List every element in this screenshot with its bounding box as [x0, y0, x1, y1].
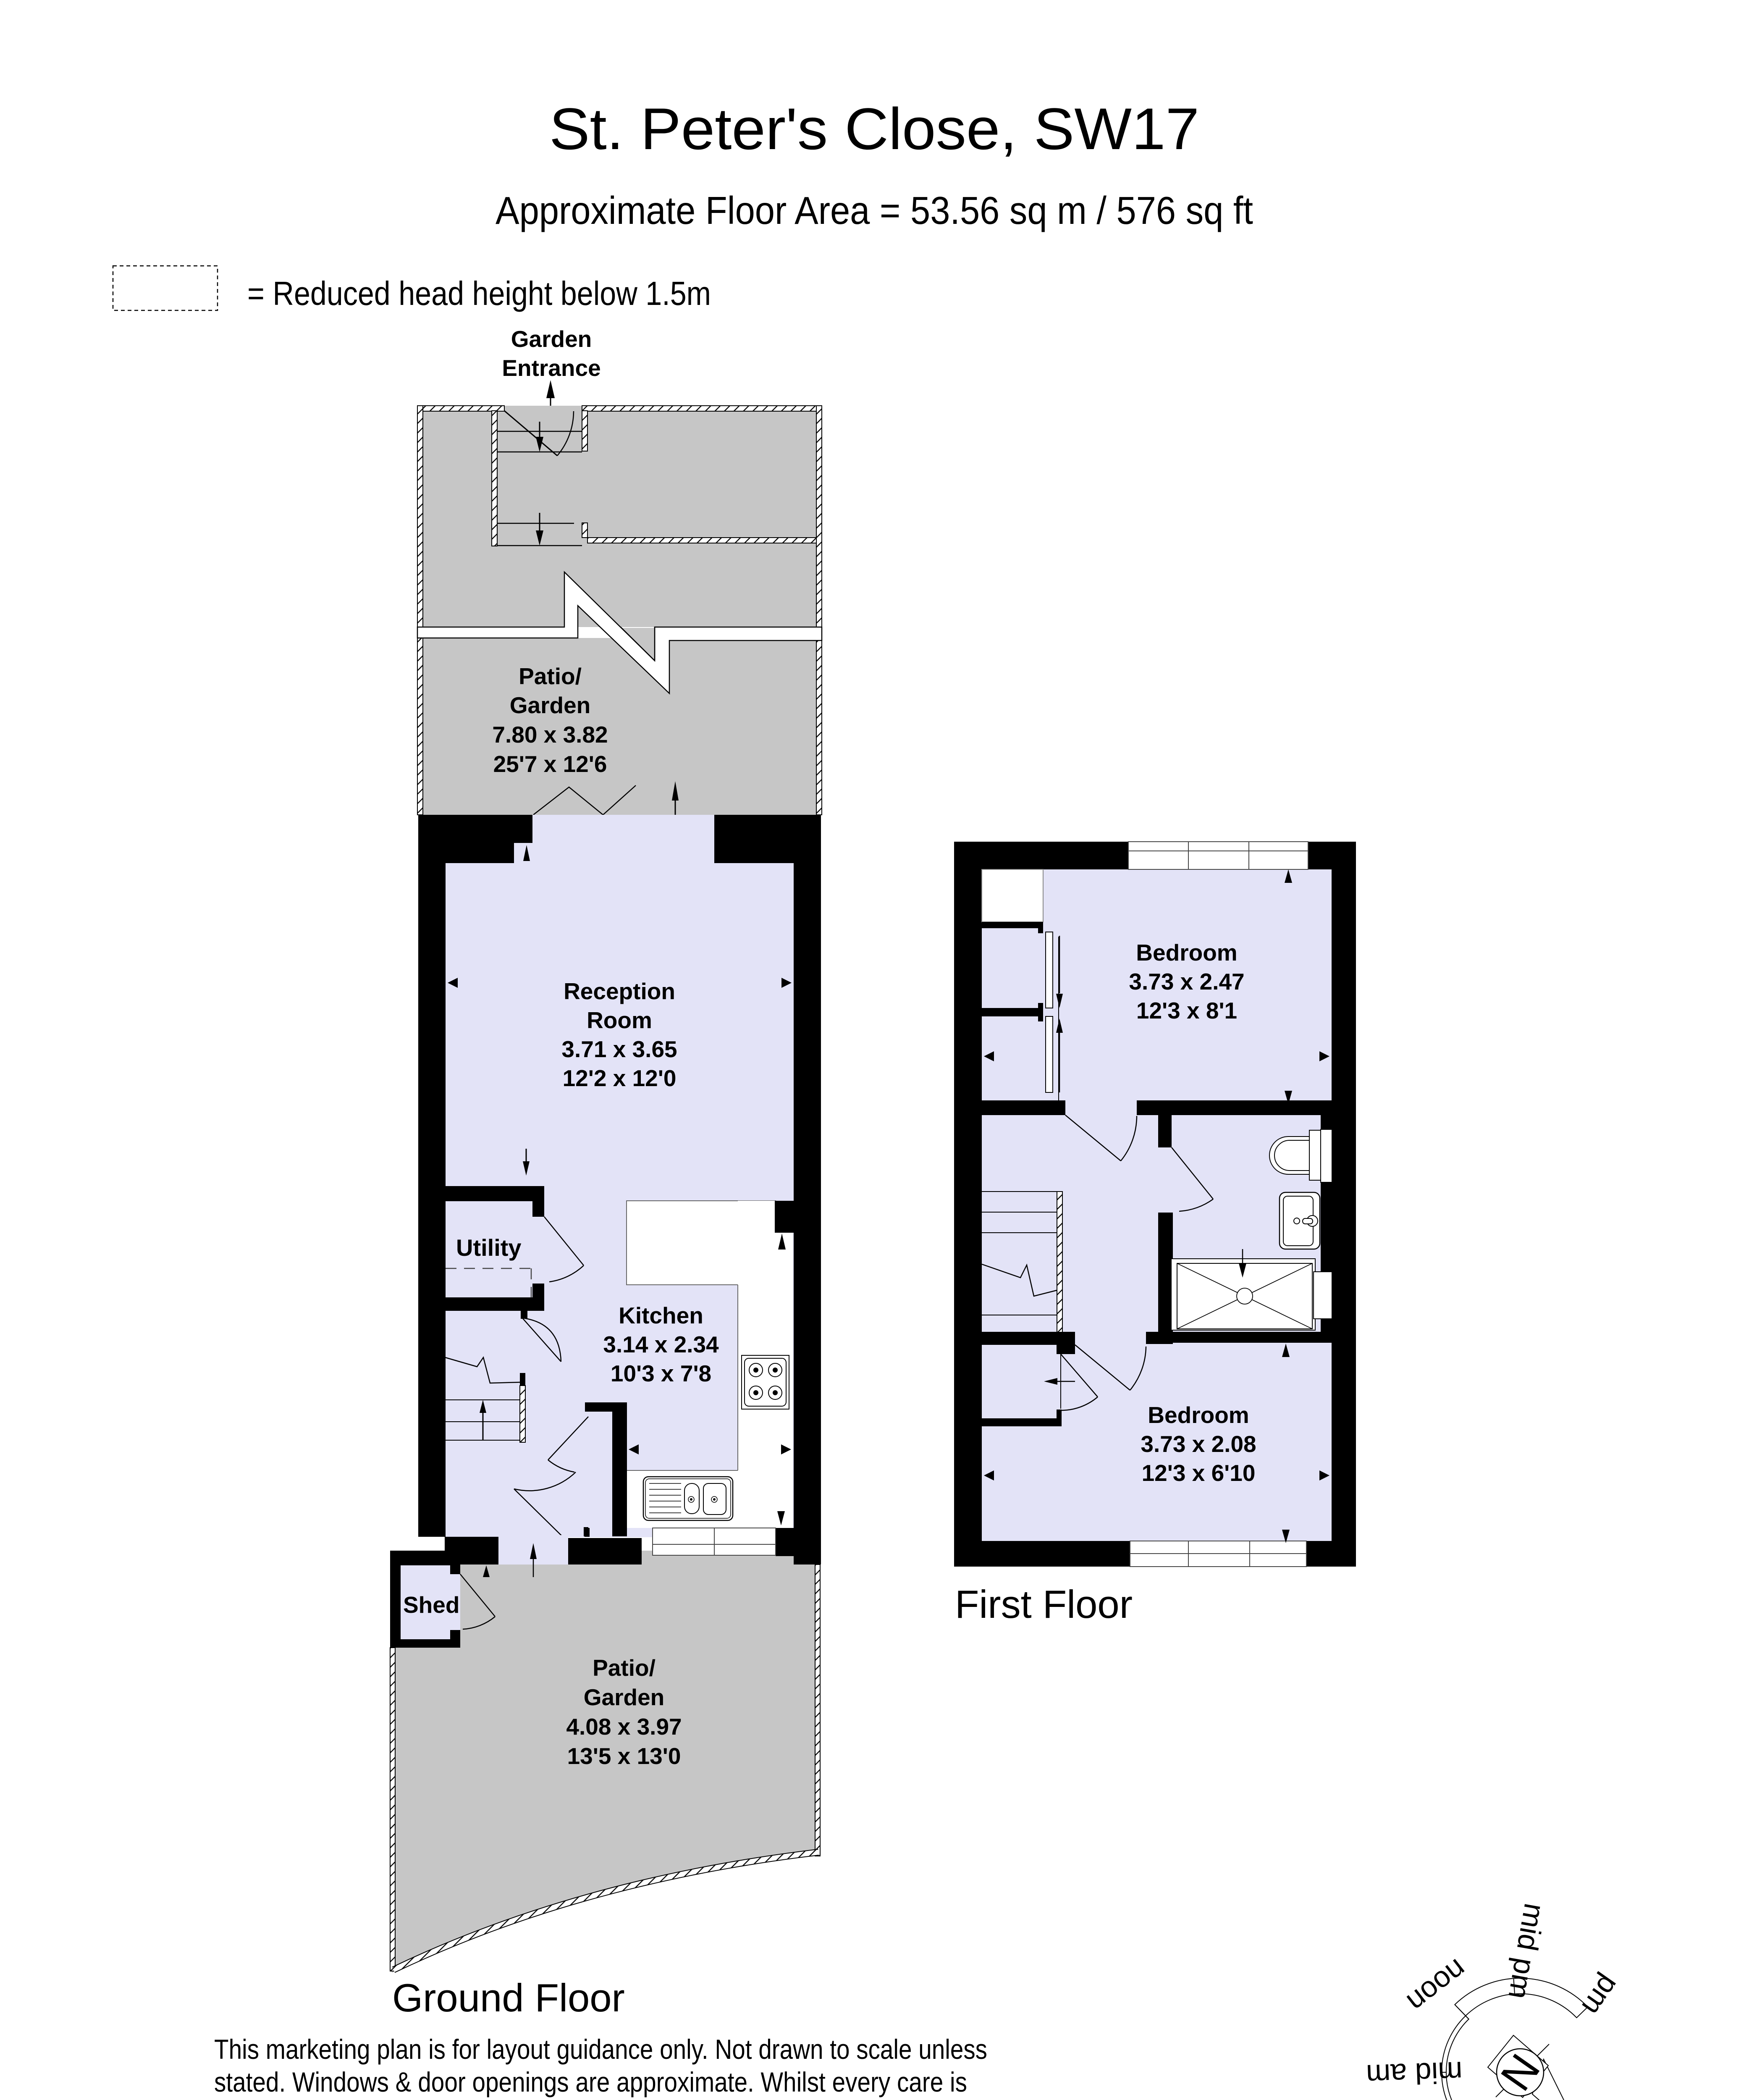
svg-text:3.73 x 2.08: 3.73 x 2.08 — [1141, 1431, 1256, 1457]
svg-text:First Floor: First Floor — [955, 1582, 1133, 1626]
svg-text:Entrance: Entrance — [502, 355, 600, 381]
svg-text:Patio/: Patio/ — [593, 1655, 656, 1681]
svg-text:St. Peter's Close, SW17: St. Peter's Close, SW17 — [549, 96, 1199, 162]
svg-text:Garden: Garden — [510, 692, 591, 718]
svg-text:Bedroom: Bedroom — [1148, 1402, 1249, 1428]
svg-text:Room: Room — [587, 1007, 652, 1033]
svg-text:3.71 x 3.65: 3.71 x 3.65 — [561, 1036, 677, 1062]
svg-text:12'3 x 6'10: 12'3 x 6'10 — [1142, 1460, 1256, 1486]
svg-text:10'3 x 7'8: 10'3 x 7'8 — [611, 1360, 711, 1386]
svg-text:Utility: Utility — [456, 1234, 522, 1261]
svg-text:Bedroom: Bedroom — [1136, 940, 1237, 966]
svg-text:Ground Floor: Ground Floor — [392, 1976, 625, 2020]
svg-text:= Reduced head height below 1.: = Reduced head height below 1.5m — [247, 275, 711, 312]
svg-text:3.14 x 2.34: 3.14 x 2.34 — [603, 1331, 719, 1357]
svg-text:13'5 x 13'0: 13'5 x 13'0 — [567, 1743, 681, 1769]
svg-text:7.80 x 3.82: 7.80 x 3.82 — [492, 722, 608, 748]
svg-text:Approximate Floor Area = 53.56: Approximate Floor Area = 53.56 sq m / 57… — [496, 189, 1253, 232]
svg-text:Reception: Reception — [564, 978, 675, 1004]
svg-text:4.08 x 3.97: 4.08 x 3.97 — [566, 1714, 682, 1740]
svg-text:Garden: Garden — [511, 326, 592, 352]
svg-text:3.73 x 2.47: 3.73 x 2.47 — [1129, 969, 1244, 995]
svg-text:Garden: Garden — [584, 1684, 665, 1710]
svg-text:25'7 x 12'6: 25'7 x 12'6 — [493, 751, 607, 777]
svg-text:This marketing plan is for lay: This marketing plan is for layout guidan… — [214, 2034, 987, 2065]
svg-text:Patio/: Patio/ — [519, 663, 582, 689]
svg-text:Kitchen: Kitchen — [619, 1302, 703, 1328]
svg-text:mid am: mid am — [1366, 2055, 1463, 2092]
svg-text:stated. Windows & door opening: stated. Windows & door openings are appr… — [214, 2066, 967, 2097]
svg-text:Shed: Shed — [403, 1592, 459, 1618]
svg-text:12'3 x 8'1: 12'3 x 8'1 — [1136, 997, 1237, 1024]
svg-text:12'2 x 12'0: 12'2 x 12'0 — [563, 1065, 677, 1091]
